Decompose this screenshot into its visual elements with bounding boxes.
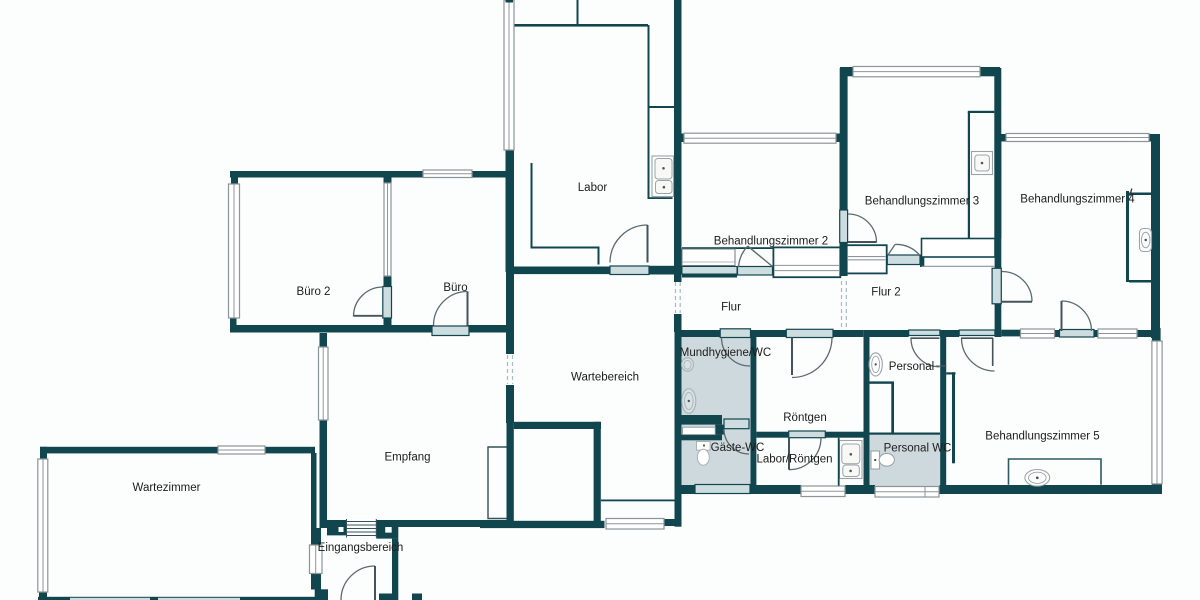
svg-text:Mundhygiene/WC: Mundhygiene/WC — [680, 347, 771, 359]
svg-text:Wartezimmer: Wartezimmer — [133, 482, 201, 494]
svg-text:Wartebereich: Wartebereich — [571, 372, 639, 384]
svg-text:Eingangsbereich: Eingangsbereich — [318, 542, 404, 554]
svg-text:Labor: Labor — [578, 182, 608, 194]
svg-text:Gäste-WC: Gäste-WC — [711, 442, 765, 454]
svg-text:Röntgen: Röntgen — [783, 412, 826, 424]
svg-text:Behandlungszimmer 3: Behandlungszimmer 3 — [865, 196, 979, 208]
svg-text:Empfang: Empfang — [384, 452, 430, 464]
svg-text:Büro 2: Büro 2 — [297, 286, 331, 298]
svg-text:Labor/Röntgen: Labor/Röntgen — [756, 454, 832, 466]
svg-text:Flur 2: Flur 2 — [871, 287, 900, 299]
svg-text:Flur: Flur — [721, 302, 741, 314]
svg-text:Behandlungszimmer 4: Behandlungszimmer 4 — [1020, 194, 1135, 206]
svg-text:Behandlungszimmer 2: Behandlungszimmer 2 — [714, 236, 828, 248]
svg-text:Behandlungszimmer 5: Behandlungszimmer 5 — [985, 431, 1099, 443]
svg-text:Büro: Büro — [443, 282, 467, 294]
svg-text:Personal WC: Personal WC — [884, 443, 952, 455]
svg-text:Personal: Personal — [889, 361, 934, 373]
